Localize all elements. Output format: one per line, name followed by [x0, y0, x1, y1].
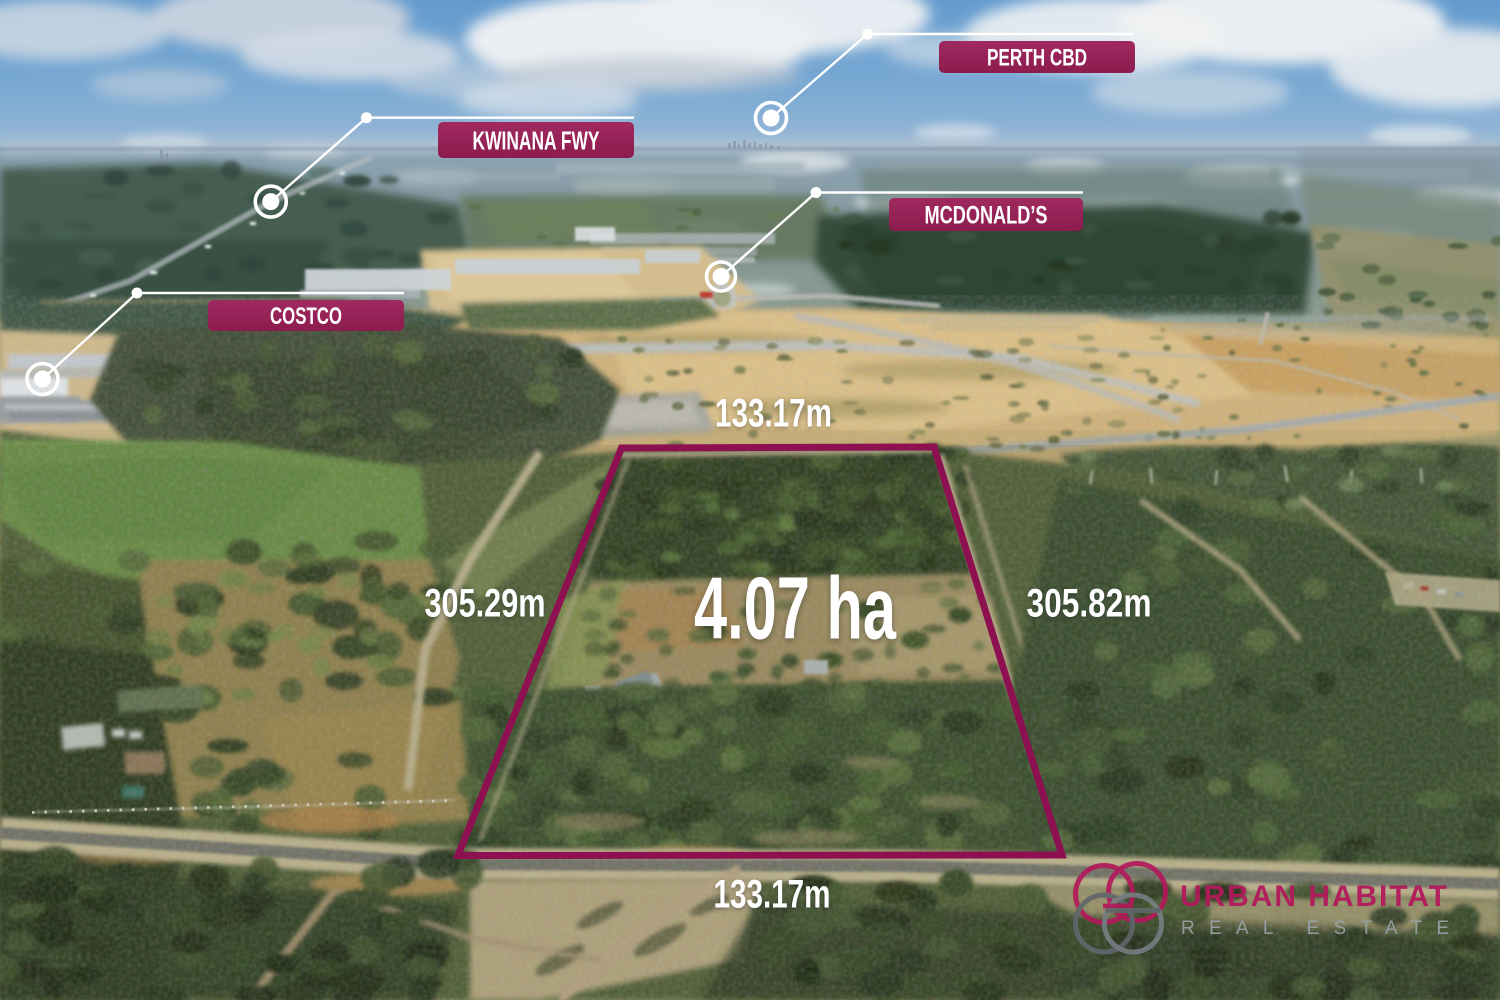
- svg-text:COSTCO: COSTCO: [270, 303, 342, 330]
- svg-text:305.29m: 305.29m: [425, 581, 546, 625]
- svg-text:4.07 ha: 4.07 ha: [694, 559, 897, 658]
- svg-text:133.17m: 133.17m: [714, 872, 831, 916]
- svg-text:URBAN HABITAT: URBAN HABITAT: [1180, 880, 1447, 913]
- svg-text:133.17m: 133.17m: [715, 391, 832, 435]
- svg-text:MCDONALD’S: MCDONALD’S: [925, 202, 1048, 230]
- svg-text:KWINANA FWY: KWINANA FWY: [473, 125, 600, 155]
- svg-text:PERTH CBD: PERTH CBD: [987, 45, 1087, 72]
- svg-text:305.82m: 305.82m: [1027, 581, 1152, 625]
